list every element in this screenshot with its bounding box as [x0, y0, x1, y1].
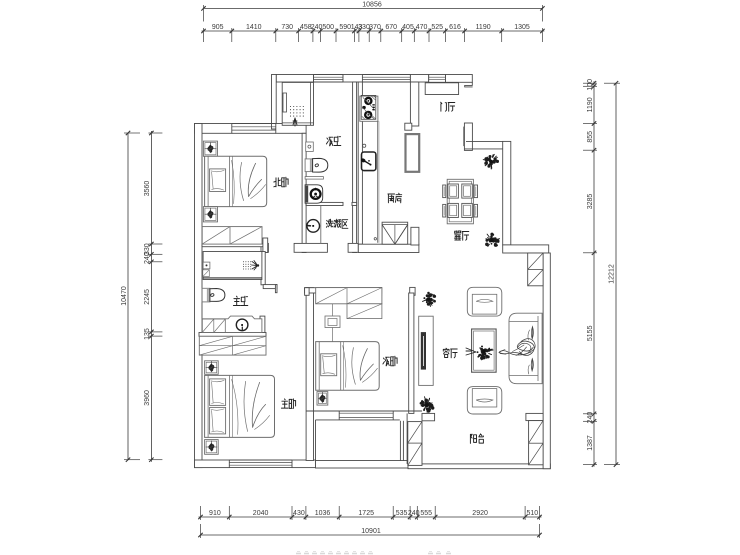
svg-text:1410: 1410	[246, 24, 262, 31]
svg-text:240: 240	[408, 510, 420, 517]
svg-text:1036: 1036	[315, 510, 331, 517]
svg-text:2040: 2040	[253, 510, 269, 517]
svg-text:405: 405	[402, 24, 414, 31]
svg-text:370: 370	[369, 24, 381, 31]
svg-text:910: 910	[209, 510, 221, 517]
svg-text:100: 100	[587, 79, 594, 91]
svg-text:1725: 1725	[358, 510, 374, 517]
svg-text:535: 535	[396, 510, 408, 517]
svg-text:3560: 3560	[144, 181, 151, 197]
svg-text:670: 670	[385, 24, 397, 31]
svg-text:5155: 5155	[587, 325, 594, 341]
svg-text:2245: 2245	[144, 289, 151, 305]
svg-text:470: 470	[416, 24, 428, 31]
svg-text:510: 510	[526, 510, 538, 517]
svg-text:555: 555	[420, 510, 432, 517]
svg-text:430: 430	[293, 510, 305, 517]
svg-text:905: 905	[212, 24, 224, 31]
svg-text:1387: 1387	[587, 435, 594, 451]
svg-text:10856: 10856	[362, 1, 382, 8]
svg-text:240: 240	[587, 412, 594, 424]
svg-text:855: 855	[587, 131, 594, 143]
svg-text:10470: 10470	[121, 286, 128, 306]
svg-text:240: 240	[311, 24, 323, 31]
svg-text:240: 240	[144, 252, 151, 264]
svg-text:3960: 3960	[144, 390, 151, 406]
svg-text:1190: 1190	[476, 24, 491, 31]
svg-text:730: 730	[281, 24, 293, 31]
svg-text:1305: 1305	[514, 24, 530, 31]
svg-text:616: 616	[449, 24, 461, 31]
svg-text:1190: 1190	[587, 97, 594, 112]
svg-text:500: 500	[322, 24, 334, 31]
svg-text:525: 525	[431, 24, 443, 31]
svg-text:3285: 3285	[587, 194, 594, 210]
svg-text:590: 590	[339, 24, 351, 31]
svg-text:10901: 10901	[361, 528, 381, 535]
svg-text:135: 135	[144, 328, 151, 340]
svg-text:12212: 12212	[609, 264, 616, 284]
svg-text:2920: 2920	[472, 510, 488, 517]
